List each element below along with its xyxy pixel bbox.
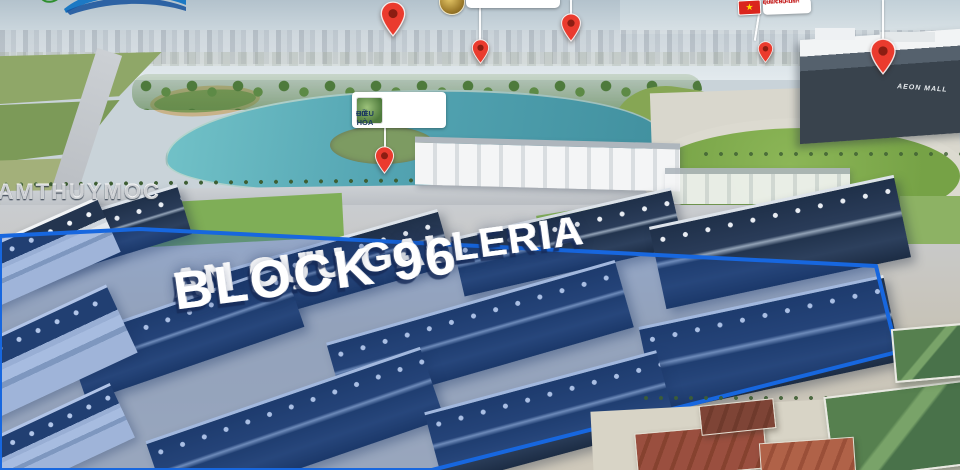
map-pin-military xyxy=(757,41,774,63)
flag-star: ★ xyxy=(745,3,754,12)
pin-connector-line xyxy=(479,6,481,40)
vietnam-flag-icon: ★ xyxy=(738,0,762,16)
aerial-photo-scene: AEON MALL LAMTHUYMOCLAMTHUYMOCLAMTHUYMOC… xyxy=(0,0,960,470)
map-pin-northwest xyxy=(379,1,407,37)
green-roof-house xyxy=(891,323,960,383)
map-pin-lake xyxy=(374,146,395,174)
map-pin-northeast xyxy=(560,13,582,42)
pin-connector-line xyxy=(384,127,386,147)
map-pin-north-center xyxy=(471,39,490,64)
military-hq-label: KHU CHỈ HUY QUÂN SỰ TỈNH xyxy=(763,0,811,15)
military-hq-label-line2: QUÂN SỰ TỈNH xyxy=(763,0,800,6)
lake-label: HỒ ĐIỀU HÒA xyxy=(352,92,446,128)
map-pin-aeon-mall xyxy=(869,38,897,75)
pin-connector-line xyxy=(570,0,572,14)
lake-label-line2: ĐIỀU HÒA xyxy=(356,110,374,127)
pin-connector-line xyxy=(882,0,884,40)
red-roof-house xyxy=(759,437,856,470)
top-partial-label xyxy=(466,0,560,8)
brand-logo-icon xyxy=(36,0,186,21)
watermark-text: LAMTHUYMOC xyxy=(0,179,161,205)
